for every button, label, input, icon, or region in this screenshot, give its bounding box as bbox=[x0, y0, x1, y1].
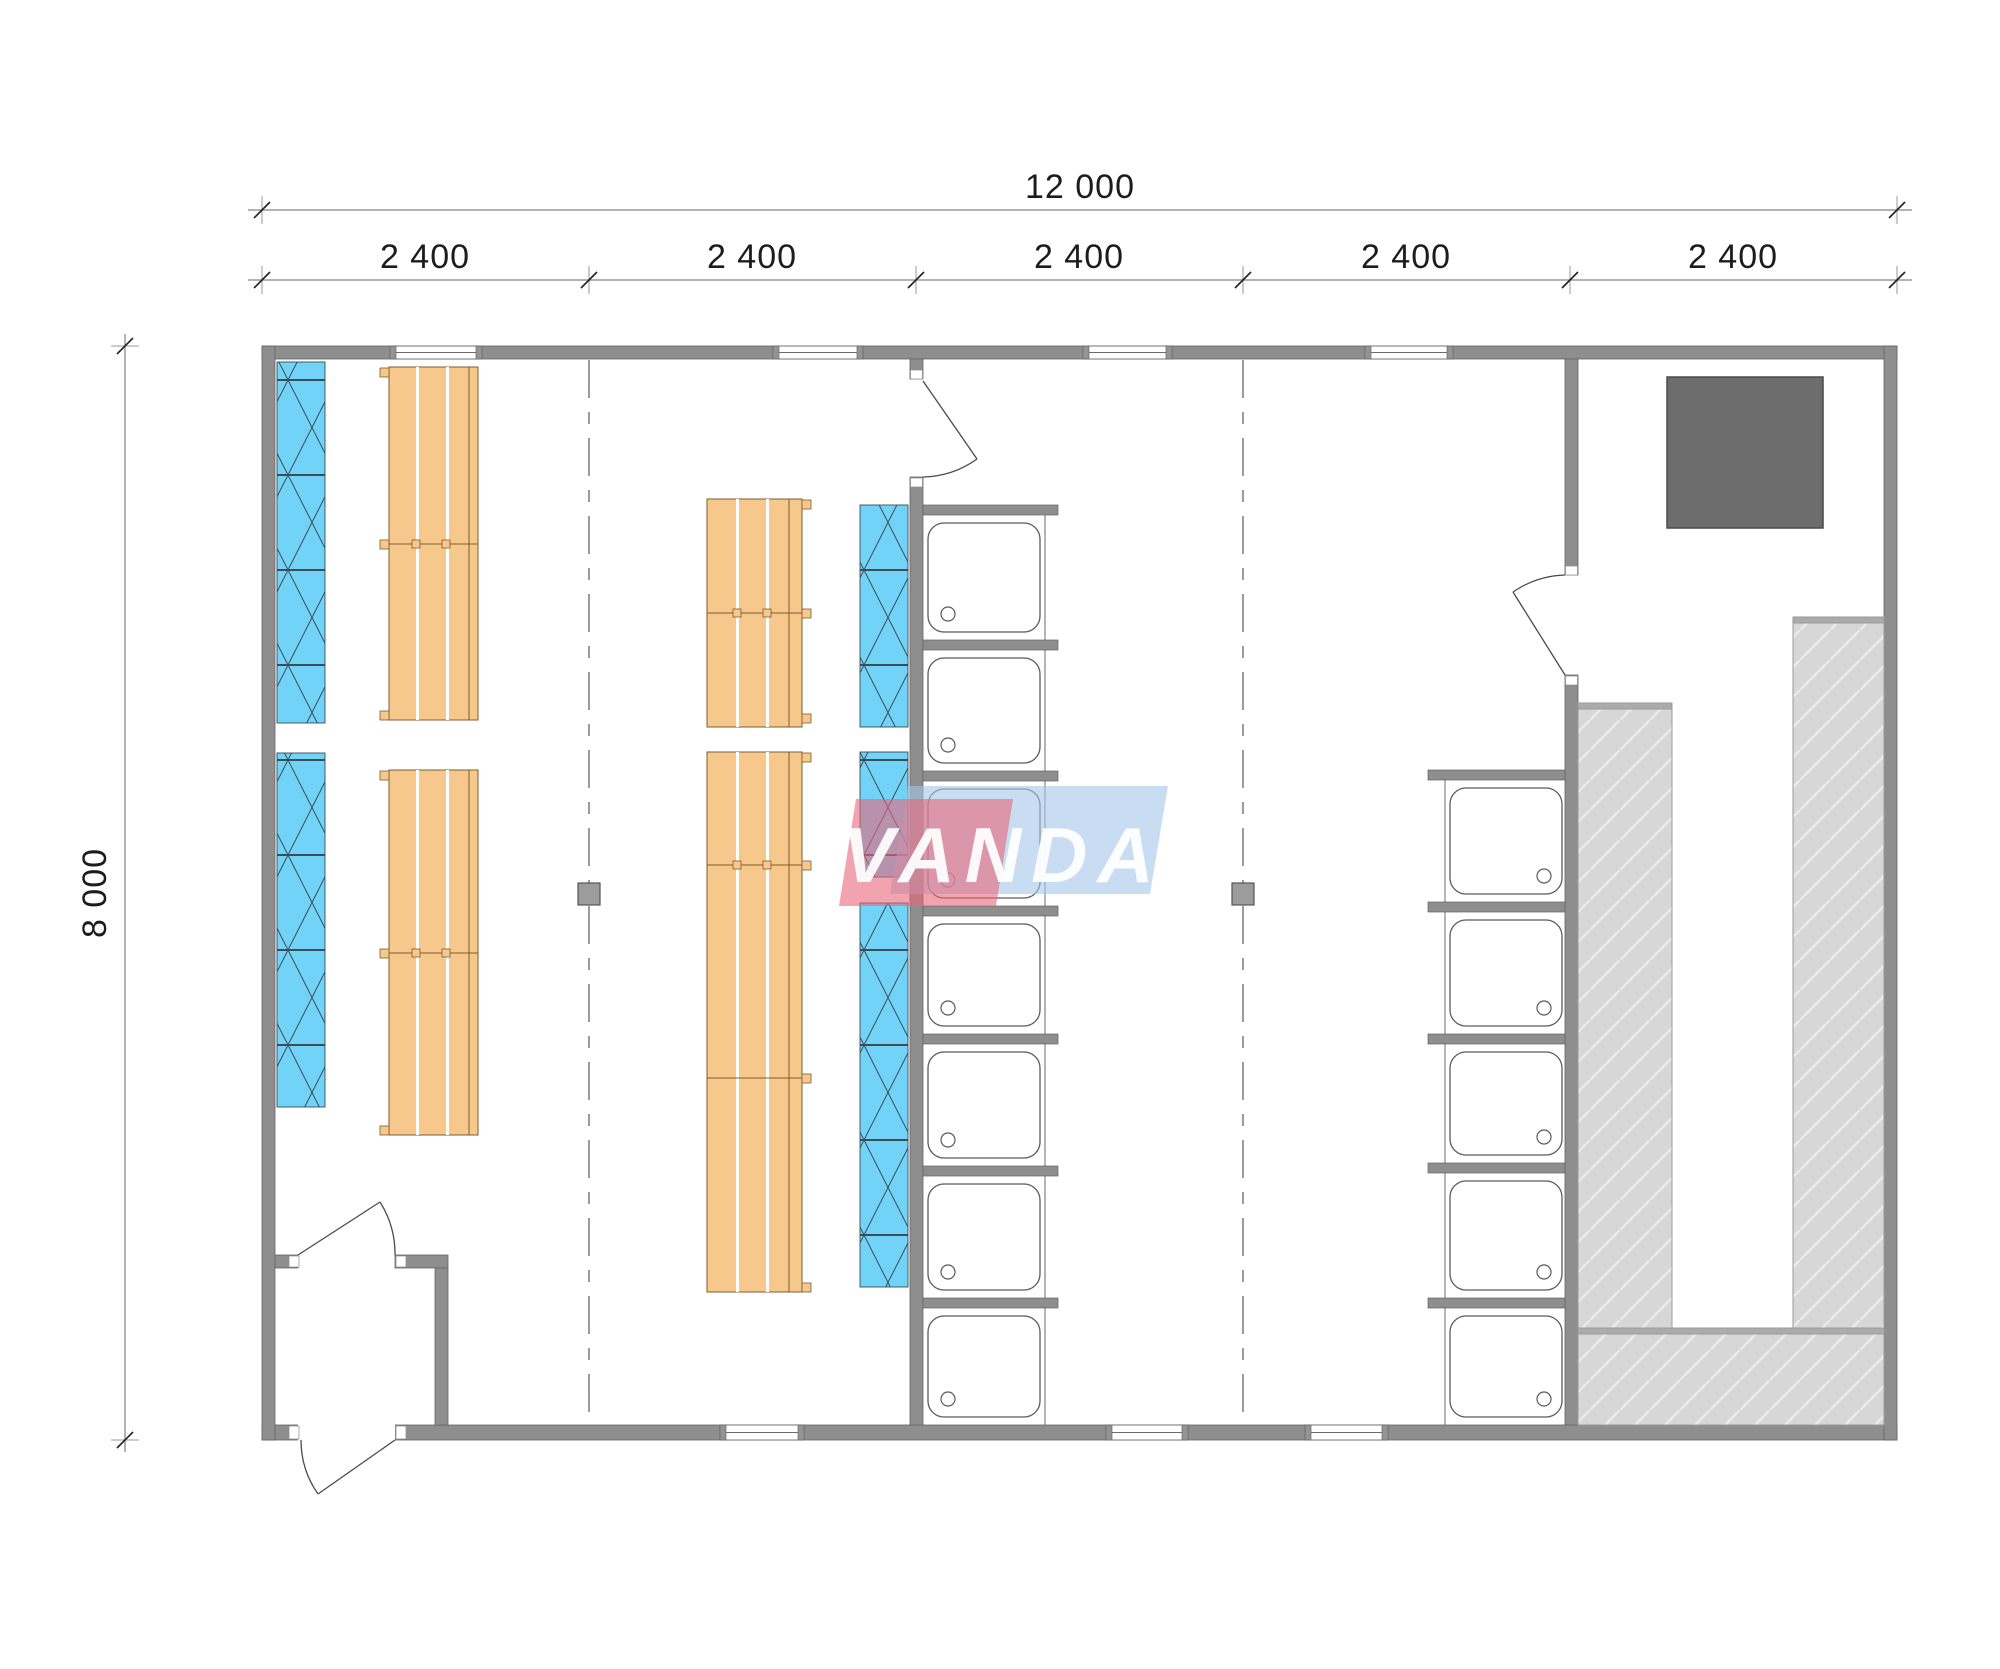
door-right-room bbox=[1513, 575, 1565, 675]
window-top-4 bbox=[1365, 346, 1453, 359]
dimension-label-segment: 2 400 bbox=[1688, 238, 1778, 276]
drain-icon bbox=[941, 1392, 955, 1406]
shower-divider bbox=[923, 640, 1058, 650]
window-bottom-1 bbox=[720, 1425, 804, 1440]
shower-divider bbox=[923, 1166, 1058, 1176]
shower-divider bbox=[923, 771, 1058, 781]
radiator-left-upper bbox=[277, 362, 325, 723]
window-top-2 bbox=[773, 346, 863, 359]
dimension-label-total-height: 8 000 bbox=[76, 848, 114, 938]
dimension-segments: 2 400 2 400 2 400 2 400 2 400 bbox=[248, 238, 1912, 294]
wall-bottom bbox=[262, 1425, 1897, 1440]
benches bbox=[380, 367, 811, 1292]
window-bottom-3 bbox=[1305, 1425, 1388, 1440]
shower-column-right bbox=[1428, 770, 1565, 1425]
wall-top bbox=[262, 346, 1897, 359]
wall-right-room-upper bbox=[1565, 359, 1578, 575]
bench-group-left-1 bbox=[380, 367, 478, 720]
drain-icon bbox=[941, 1001, 955, 1015]
dimension-total-width: 12 000 bbox=[248, 168, 1912, 224]
drain-icon bbox=[941, 607, 955, 621]
shower-divider bbox=[923, 1034, 1058, 1044]
platform-cap bbox=[1793, 617, 1884, 623]
bench-group-center-1 bbox=[707, 499, 811, 727]
dimension-label-segment: 2 400 bbox=[1361, 238, 1451, 276]
drain-icon bbox=[941, 1265, 955, 1279]
shower-divider bbox=[923, 1298, 1058, 1308]
radiator-center-1 bbox=[860, 505, 908, 727]
dimension-label-segment: 2 400 bbox=[380, 238, 470, 276]
dimension-label-total-width: 12 000 bbox=[1025, 168, 1135, 206]
platform-hatched bbox=[1578, 617, 1884, 1425]
wall-right-room-lower bbox=[1565, 675, 1578, 1425]
platform-cap bbox=[1578, 1328, 1884, 1334]
radiator-center-3 bbox=[860, 903, 908, 1287]
shower-divider bbox=[1428, 1034, 1565, 1044]
bench-group-left-2 bbox=[380, 770, 478, 1135]
platform-right-column bbox=[1793, 617, 1884, 1328]
door-center-wall bbox=[923, 381, 977, 477]
window-bottom-2 bbox=[1106, 1425, 1188, 1440]
wall-vestibule-side bbox=[435, 1268, 448, 1425]
radiator-left-wall bbox=[277, 362, 325, 1107]
brand-logo: VANDA bbox=[839, 786, 1168, 906]
door-vestibule-interior bbox=[298, 1202, 395, 1255]
platform-bottom-band bbox=[1578, 1328, 1884, 1425]
shower-divider bbox=[1428, 770, 1565, 780]
drain-icon bbox=[1537, 1130, 1551, 1144]
shower-divider bbox=[923, 505, 1058, 515]
stove bbox=[1667, 377, 1823, 528]
drain-icon bbox=[1537, 1265, 1551, 1279]
drain-icon bbox=[941, 738, 955, 752]
dimension-total-height: 8 000 bbox=[76, 334, 139, 1452]
floor-plan-page: VANDA 12 000 2 400 2 400 2 400 2 400 2 4… bbox=[0, 0, 2000, 1669]
post bbox=[578, 883, 600, 905]
door-entry-exterior bbox=[301, 1440, 395, 1494]
drain-icon bbox=[941, 1133, 955, 1147]
drain-icon bbox=[1537, 869, 1551, 883]
bench-group-center-2 bbox=[707, 752, 811, 1292]
shower-divider bbox=[1428, 1163, 1565, 1173]
dimension-label-segment: 2 400 bbox=[1034, 238, 1124, 276]
shower-divider bbox=[923, 906, 1058, 916]
wall-right bbox=[1884, 346, 1897, 1440]
drain-icon bbox=[1537, 1392, 1551, 1406]
wall-left bbox=[262, 346, 275, 1440]
shower-column-center bbox=[923, 505, 1058, 1425]
entry-door-opening bbox=[298, 1424, 395, 1441]
dimension-label-segment: 2 400 bbox=[707, 238, 797, 276]
shower-divider bbox=[1428, 902, 1565, 912]
radiator-left-lower bbox=[277, 753, 325, 1107]
platform-left-column bbox=[1578, 703, 1672, 1328]
window-top-3 bbox=[1083, 346, 1172, 359]
platform-cap bbox=[1578, 703, 1672, 709]
logo-text: VANDA bbox=[842, 811, 1164, 899]
window-top-1 bbox=[390, 346, 482, 359]
post bbox=[1232, 883, 1254, 905]
floor-plan-drawing: VANDA 12 000 2 400 2 400 2 400 2 400 2 4… bbox=[0, 0, 2000, 1669]
drain-icon bbox=[1537, 1001, 1551, 1015]
shower-divider bbox=[1428, 1298, 1565, 1308]
wall-center bbox=[910, 477, 923, 1425]
